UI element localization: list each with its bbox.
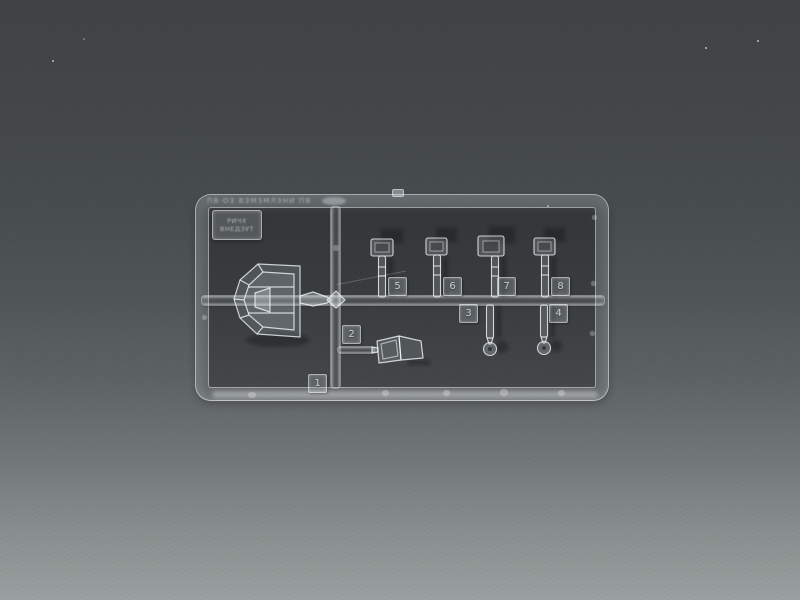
part-number-tab-4: 4 xyxy=(549,304,568,323)
part-3 xyxy=(484,305,497,356)
ejector-mark xyxy=(382,390,389,396)
dust-speck xyxy=(757,40,759,42)
top-rail-nub xyxy=(392,189,404,197)
dust-speck xyxy=(547,205,549,207)
dust-speck xyxy=(83,38,85,40)
part-1-canopy xyxy=(234,264,345,337)
part-number-tab-6: 6 xyxy=(443,277,462,296)
ejector-mark xyxy=(500,389,508,396)
part-number-tab-3: 3 xyxy=(459,304,478,323)
molded-parts-layer xyxy=(0,0,800,600)
dust-speck xyxy=(705,47,707,49)
ejector-mark xyxy=(558,390,565,396)
ejector-mark xyxy=(592,215,597,220)
part-2-windscreen xyxy=(372,336,423,363)
part-number-tab-5: 5 xyxy=(388,277,407,296)
top-rail-gate-mark xyxy=(322,197,346,205)
part-number-tab-7: 7 xyxy=(497,277,516,296)
ejector-mark xyxy=(202,315,207,320)
ejector-mark xyxy=(333,245,339,251)
part-number-tab-8: 8 xyxy=(551,277,570,296)
part-number-tab-2: 2 xyxy=(342,325,361,344)
ejector-mark xyxy=(248,392,256,398)
sprue-photo: ПВ·ОЗ ВЗМЗМЛЗНИ ПВ РИЧХ ВНЕДЗУТ xyxy=(0,0,800,600)
part-number-tab-1: 1 xyxy=(308,374,327,393)
ejector-mark xyxy=(591,281,596,286)
ejector-mark xyxy=(590,331,595,336)
parts-3-and-4 xyxy=(484,305,551,356)
ejector-mark xyxy=(443,390,450,396)
dust-speck xyxy=(52,60,54,62)
